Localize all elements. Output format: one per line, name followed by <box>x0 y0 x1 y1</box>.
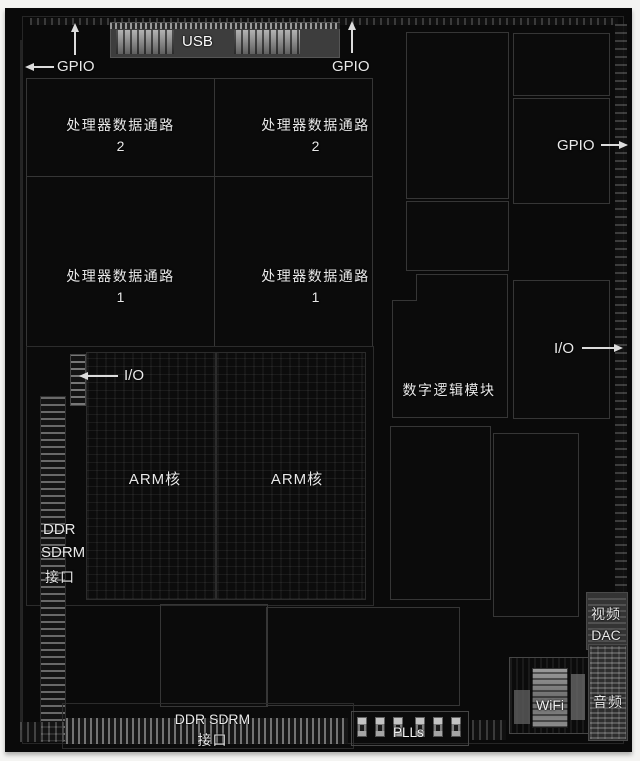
arm-core-right-label: ARM核 <box>242 468 352 489</box>
gpio-topleft-left-arrow <box>33 66 54 68</box>
pll-cell <box>451 717 461 737</box>
gpio-topmid-up-arrowhead <box>348 21 356 30</box>
io-left-label: I/O <box>124 367 144 384</box>
gpio-right-label: GPIO <box>557 137 595 154</box>
datapath1-left-label: 处理器数据通路 <box>33 266 208 286</box>
pll-cell <box>433 717 443 737</box>
unlabeled-block <box>266 607 460 706</box>
unlabeled-block <box>513 33 610 96</box>
plls-label: PLLs <box>393 725 424 740</box>
usb-pad-cell-right <box>234 30 300 54</box>
digital-logic-label: 数字逻辑模块 <box>394 380 504 400</box>
annotated-soc-die-photo: GPIO USB GPIO GPIO 处理器数据通路 2 处理器数据通路 2 处… <box>0 0 640 761</box>
gpio-topmid-label: GPIO <box>332 58 370 75</box>
usb-label: USB <box>182 33 213 50</box>
datapath1-right-number: 1 <box>228 289 403 305</box>
bottom-left-pad-ticks <box>20 722 64 742</box>
unlabeled-block <box>406 201 509 271</box>
left-edge-line <box>20 40 22 730</box>
io-pad-block <box>70 354 86 406</box>
unlabeled-block <box>406 32 509 199</box>
io-left-arrow <box>88 375 118 377</box>
io-left-arrowhead <box>79 372 88 380</box>
ddr-left-line3: 接口 <box>45 567 75 587</box>
arm-core-left-label: ARM核 <box>100 468 210 489</box>
usb-pad-cell-left <box>116 30 174 54</box>
datapath2-left-label: 处理器数据通路 <box>33 115 208 135</box>
unlabeled-block <box>390 426 491 600</box>
gpio-topleft-up-arrowhead <box>71 23 79 32</box>
gpio-right-arrow <box>601 144 619 146</box>
ddr-bottom-line1: DDR SDRM <box>140 711 285 727</box>
gpio-topmid-up-arrow <box>351 29 353 53</box>
wifi-circuit-patch <box>514 690 530 724</box>
unlabeled-block <box>160 604 268 707</box>
wifi-circuit-patch <box>571 674 585 720</box>
ddr-left-line1: DDR <box>43 521 76 538</box>
io-right-arrowhead <box>614 344 623 352</box>
gpio-right-arrowhead <box>619 141 628 149</box>
video-dac-line1: 视频 <box>584 604 628 624</box>
audio-label: 音频 <box>588 692 628 712</box>
ddr-bottom-line2: 接口 <box>140 730 285 750</box>
unlabeled-block <box>493 433 579 617</box>
io-right-label: I/O <box>554 340 574 357</box>
pll-side-pad-ticks <box>472 720 506 740</box>
processor-datapath-1-left-block <box>26 176 215 347</box>
datapath2-left-number: 2 <box>33 138 208 154</box>
pll-cell <box>375 717 385 737</box>
datapath1-right-label: 处理器数据通路 <box>228 266 403 286</box>
datapath1-left-number: 1 <box>33 289 208 305</box>
gpio-topleft-up-arrow <box>74 31 76 55</box>
pll-cell <box>357 717 367 737</box>
datapath2-right-label: 处理器数据通路 <box>228 115 403 135</box>
video-dac-line2: DAC <box>584 627 628 643</box>
usb-pad-ticks <box>110 23 340 29</box>
io-right-arrow <box>582 347 614 349</box>
ddr-left-line2: SDRM <box>41 544 85 561</box>
processor-datapath-1-right-block <box>214 176 373 347</box>
gpio-topleft-label: GPIO <box>57 58 95 75</box>
wifi-label: WiFi <box>536 697 564 713</box>
datapath2-right-number: 2 <box>228 138 403 154</box>
